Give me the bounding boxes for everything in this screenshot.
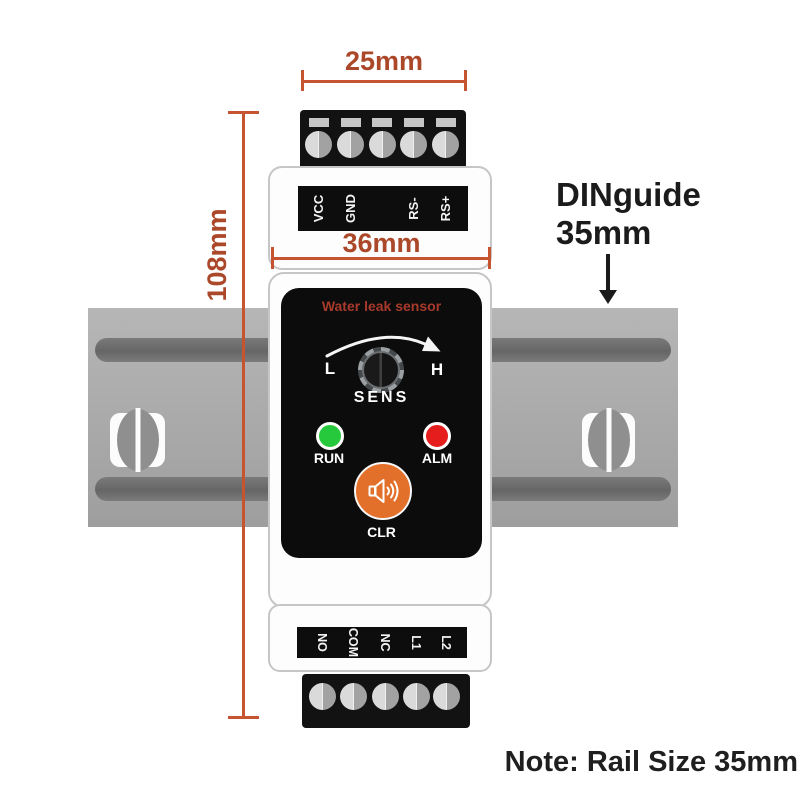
din-guide-line2: 35mm [556,214,701,252]
down-arrow-stem [606,254,610,292]
terminal-screw [432,131,459,158]
terminal-slot [372,118,392,127]
clr-button [354,462,412,520]
run-led [316,422,344,450]
rail-groove [490,338,671,362]
terminal-slot [341,118,361,127]
rail-hole-gap [606,408,611,472]
terminal-label-l1: L1 [401,627,432,658]
run-led-label: RUN [304,450,354,466]
rail-groove [490,477,671,501]
knob-slot [362,351,400,389]
dimension-height-tick-top [228,111,259,114]
panel-title: Water leak sensor [281,298,482,314]
rail-hole-gap [135,408,140,472]
top-terminal-block [300,110,466,172]
rail-size-note: Note: Rail Size 35mm [505,746,798,779]
terminal-label-rs-plus: RS+ [423,186,468,231]
terminal-label-l2: L2 [431,627,462,658]
alm-led [423,422,451,450]
dimension-body-line [272,257,491,260]
din-guide-annotation: DINguide 35mm [556,176,701,252]
front-panel: Water leak sensor L H SENS RUN ALM [281,288,482,558]
terminal-slot [309,118,329,127]
knob-label: SENS [281,389,482,407]
terminal-slot [436,118,456,127]
din-rail-left [88,308,281,527]
terminal-screw [305,131,332,158]
dimension-top-tick-left [301,70,304,91]
bottom-terminal-block [302,674,470,728]
terminal-screw [372,683,399,710]
down-arrow-icon [599,290,617,304]
bottom-terminal-label-strip: NO COM NC L1 L2 [297,627,467,658]
din-rail-right [490,308,678,527]
clr-button-label: CLR [281,524,482,540]
knob-high-label: H [425,360,449,380]
dimension-body-width-label: 36mm [272,228,491,259]
terminal-screw [400,131,427,158]
terminal-slot [404,118,424,127]
terminal-label-com: COM [338,627,369,658]
sens-knob [358,347,404,393]
top-terminal-label-strip: VCC GND RS- RS+ [298,186,468,231]
dimension-top-width-label: 25mm [302,46,466,77]
alm-led-label: ALM [412,450,462,466]
terminal-screw [403,683,430,710]
dimension-height-label: 108mm [202,175,232,335]
device-main-body: Water leak sensor L H SENS RUN ALM [268,272,492,608]
rail-mount-hole [110,413,165,467]
dimension-height-line [242,112,245,719]
dimension-top-line [302,80,466,83]
dimension-top-tick-right [464,70,467,91]
dimension-height-tick-bottom [228,716,259,719]
rail-groove [95,477,281,501]
din-guide-line1: DINguide [556,176,701,214]
terminal-label-no: NO [307,627,338,658]
rail-groove [95,338,281,362]
terminal-screw [369,131,396,158]
dimension-body-tick-right [488,247,491,269]
speaker-icon [366,476,400,506]
terminal-label-gnd: GND [328,186,373,231]
terminal-label-nc: NC [370,627,401,658]
terminal-screw [337,131,364,158]
dimension-body-tick-left [271,247,274,269]
diagram-canvas: 25mm 108mm VCC GND RS- RS+ 36mm Water le… [0,0,800,800]
terminal-screw [309,683,336,710]
knob-low-label: L [318,359,342,379]
terminal-screw [340,683,367,710]
rail-mount-hole [582,413,635,467]
terminal-screw [433,683,460,710]
